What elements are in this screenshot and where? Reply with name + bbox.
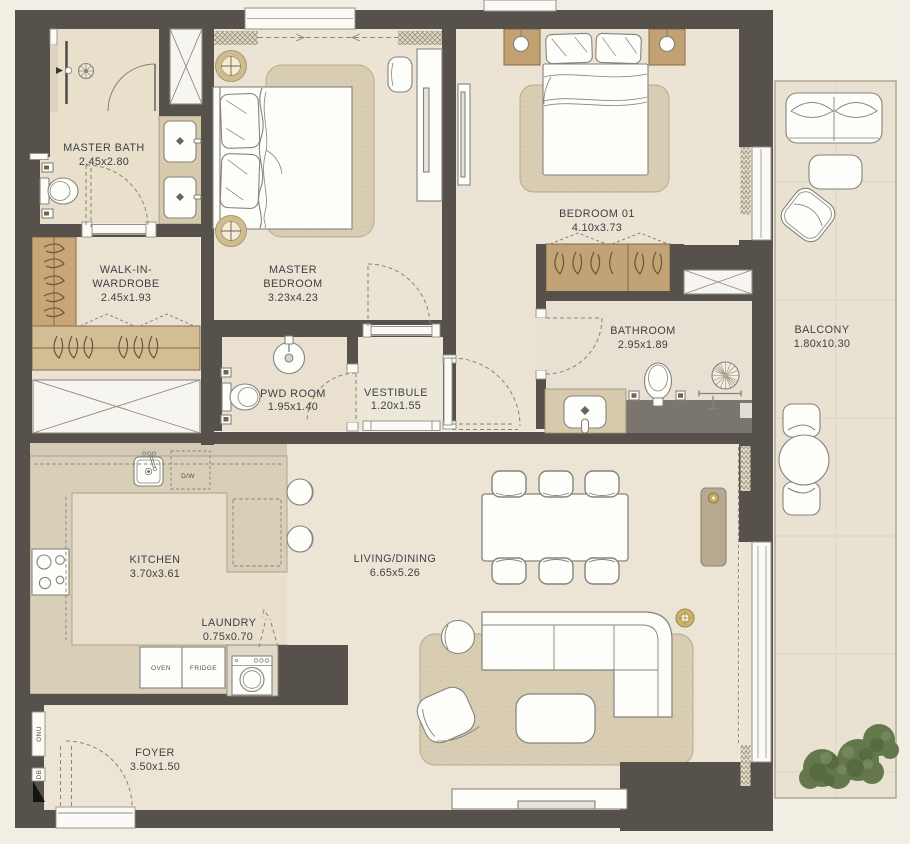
svg-text:2.95x1.89: 2.95x1.89	[618, 339, 668, 351]
svg-text:D/W: D/W	[181, 473, 195, 480]
svg-text:BALCONY: BALCONY	[794, 324, 849, 336]
svg-text:3.23x4.23: 3.23x4.23	[268, 292, 318, 304]
svg-text:OVEN: OVEN	[151, 665, 171, 672]
svg-text:0.75x0.70: 0.75x0.70	[203, 631, 253, 643]
svg-text:1.80x10.30: 1.80x10.30	[794, 338, 850, 350]
svg-text:2.45x1.93: 2.45x1.93	[101, 292, 151, 304]
svg-text:LIVING/DINING: LIVING/DINING	[354, 553, 437, 565]
svg-text:3.70x3.61: 3.70x3.61	[130, 568, 180, 580]
svg-text:MASTER BATH: MASTER BATH	[63, 142, 144, 154]
svg-text:DB: DB	[36, 770, 43, 780]
svg-text:FRIDGE: FRIDGE	[190, 665, 217, 672]
svg-text:1.20x1.55: 1.20x1.55	[371, 400, 421, 412]
svg-text:ONU: ONU	[36, 726, 43, 742]
svg-text:PWD ROOM: PWD ROOM	[260, 388, 326, 400]
svg-text:4.10x3.73: 4.10x3.73	[572, 222, 622, 234]
svg-text:1.95x1.40: 1.95x1.40	[268, 401, 318, 413]
svg-text:KITCHEN: KITCHEN	[130, 554, 181, 566]
svg-text:MASTER: MASTER	[269, 264, 317, 276]
svg-text:3.50x1.50: 3.50x1.50	[130, 761, 180, 773]
svg-text:FOYER: FOYER	[135, 747, 175, 759]
svg-text:6.65x5.26: 6.65x5.26	[370, 567, 420, 579]
svg-text:BEDROOM: BEDROOM	[263, 278, 322, 290]
svg-text:BATHROOM: BATHROOM	[610, 325, 676, 337]
svg-text:2.45x2.80: 2.45x2.80	[79, 156, 129, 168]
svg-text:VESTIBULE: VESTIBULE	[364, 387, 428, 399]
svg-text:BEDROOM 01: BEDROOM 01	[559, 208, 635, 220]
svg-text:WARDROBE: WARDROBE	[92, 278, 159, 290]
svg-text:WALK-IN-: WALK-IN-	[100, 264, 152, 276]
svg-text:LAUNDRY: LAUNDRY	[202, 617, 257, 629]
